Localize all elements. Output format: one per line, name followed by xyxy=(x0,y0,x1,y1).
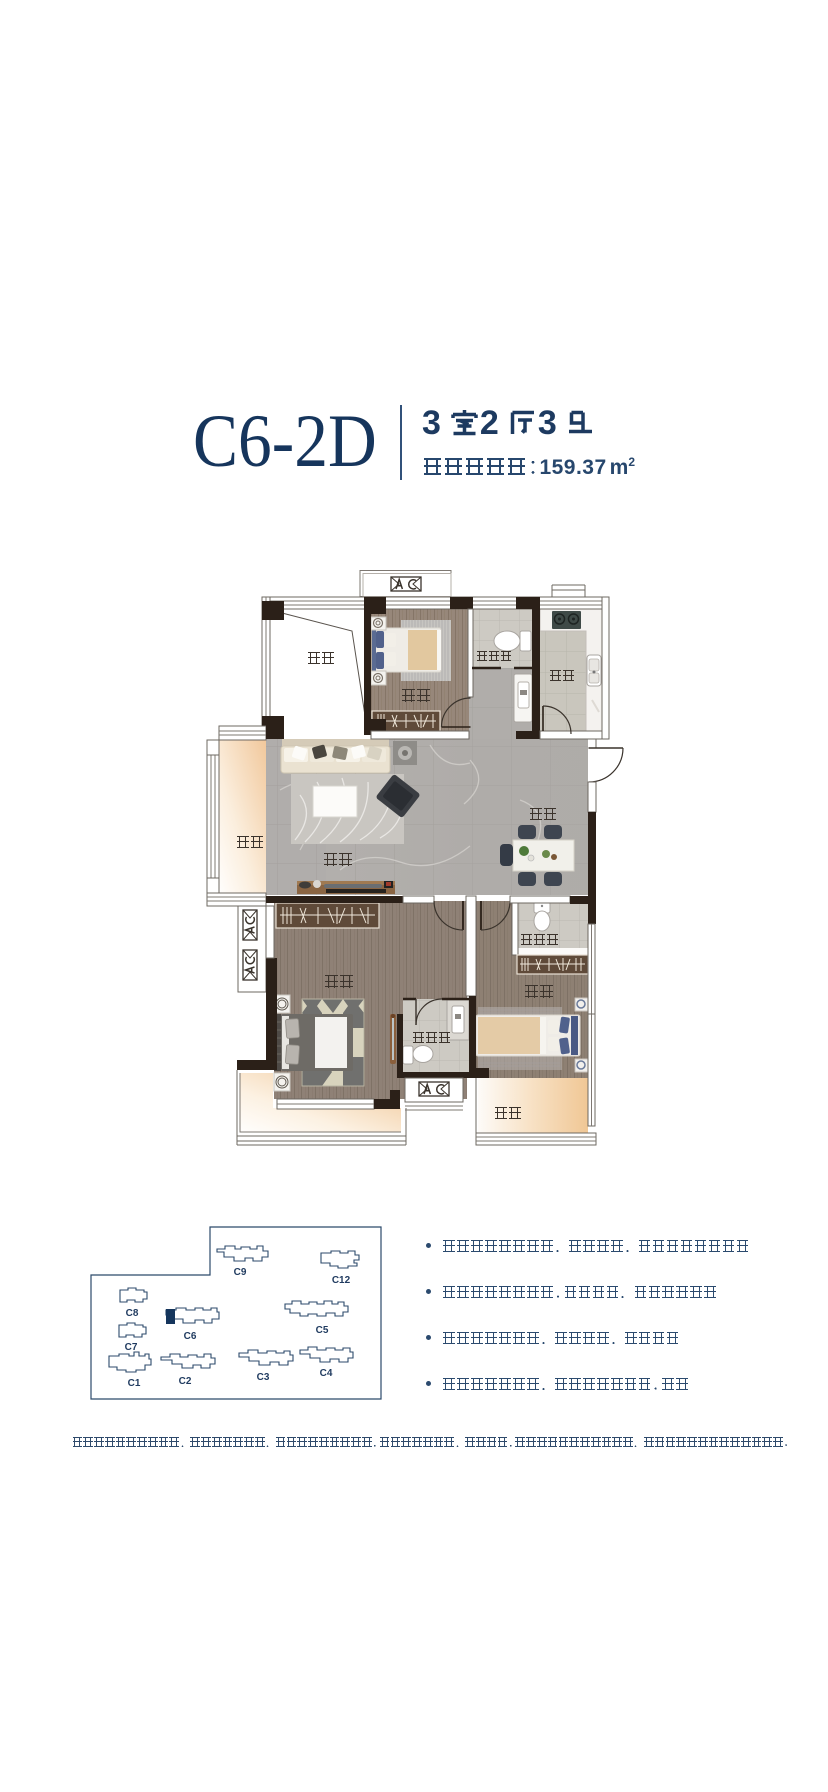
svg-text:C2: C2 xyxy=(179,1376,192,1387)
svg-text:C4: C4 xyxy=(320,1368,333,1379)
svg-text:C6: C6 xyxy=(184,1331,197,1342)
svg-text:C1: C1 xyxy=(128,1378,141,1389)
svg-text:C9: C9 xyxy=(234,1267,247,1278)
svg-text:C3: C3 xyxy=(257,1372,270,1383)
svg-text:C8: C8 xyxy=(126,1308,139,1319)
svg-text:C7: C7 xyxy=(125,1342,138,1353)
svg-text:C5: C5 xyxy=(316,1325,329,1336)
svg-text:C12: C12 xyxy=(332,1275,351,1286)
